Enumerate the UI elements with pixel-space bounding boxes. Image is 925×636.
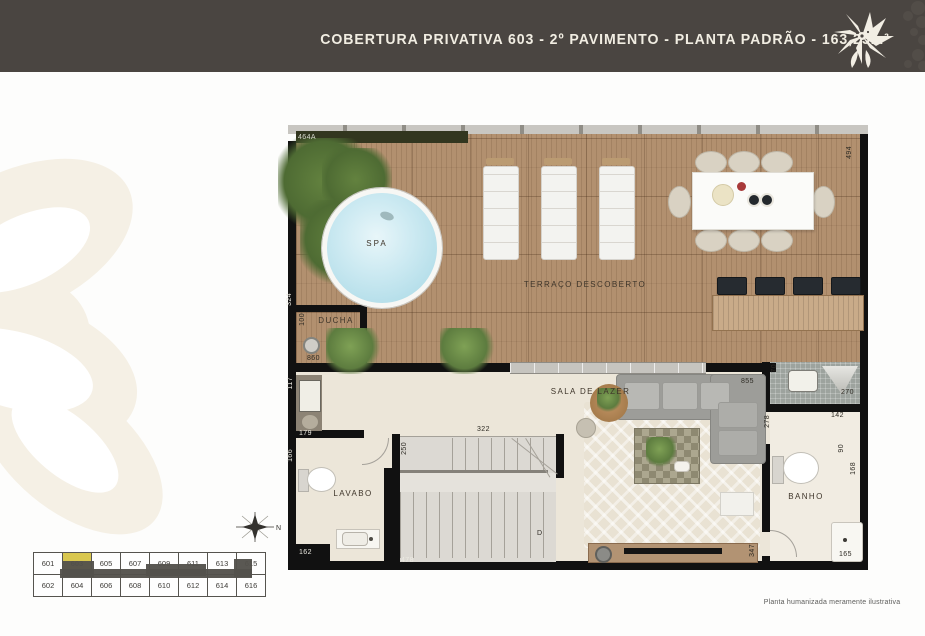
flower-logo-icon <box>826 6 898 70</box>
keyplan-unit: 602 <box>34 575 63 597</box>
dining-chair <box>728 229 760 252</box>
bar-stool <box>755 277 785 295</box>
lounger-headrest <box>544 158 572 165</box>
keyplan-unit: 608 <box>121 575 150 597</box>
room-label-terraco: TERRAÇO DESCOBERTO <box>500 280 670 289</box>
sun-lounger <box>599 166 635 260</box>
dim-banho-left: 278 <box>764 415 771 428</box>
banho-toilet-bowl <box>783 452 819 484</box>
sofa-cushion <box>718 430 758 456</box>
keyplan-unit: 606 <box>92 575 121 597</box>
bar-stool <box>831 277 861 295</box>
keyplan-unit: 612 <box>179 575 208 597</box>
tv-icon <box>624 548 722 554</box>
wall-banho-top <box>770 404 868 412</box>
compass-north-label: N <box>276 525 281 532</box>
dim-stairs-letter: D <box>537 530 542 537</box>
dining-chair <box>761 151 793 174</box>
bush-plant-icon <box>440 328 494 374</box>
faucet-icon <box>369 537 373 541</box>
dim-stairs-width: 322 <box>477 426 490 433</box>
bar-stool <box>793 277 823 295</box>
compass-icon: N <box>234 510 282 544</box>
dim-sala-width: 855 <box>741 378 754 385</box>
sliding-door <box>510 362 706 374</box>
coffee-table-plant-icon <box>646 437 676 467</box>
wall-stairs-right <box>556 434 564 478</box>
stairs-landing <box>400 473 556 492</box>
dining-chair <box>695 229 727 252</box>
dim-top-left: 464A <box>298 134 316 141</box>
ottoman <box>720 492 754 516</box>
room-label-banho: BANHO <box>775 492 837 501</box>
bar-stool <box>717 277 747 295</box>
wall-right <box>860 134 868 568</box>
dim-banho-mid: 90 <box>838 444 845 453</box>
lounger-headrest <box>602 158 630 165</box>
banho-faucet-icon <box>843 538 847 542</box>
dim-entry-width: 179 <box>299 430 312 437</box>
entry-sink <box>299 380 321 412</box>
dim-banho-door: 347 <box>749 544 756 557</box>
wall-ducha-top <box>296 305 366 312</box>
room-label-sala: SALA DE LAZER <box>508 387 673 396</box>
wall-sala-banho-lower <box>762 556 770 568</box>
tableware-icon <box>760 193 774 207</box>
dim-left-upper: 324 <box>286 293 293 306</box>
wall-stairs-left <box>392 434 400 561</box>
fruit-plate-icon <box>712 184 734 206</box>
tray-icon <box>674 461 690 472</box>
room-label-ducha: DUCHA <box>308 316 364 325</box>
shower-head-icon <box>303 337 320 354</box>
page: COBERTURA PRIVATIVA 603 - 2º PAVIMENTO -… <box>0 0 925 636</box>
dim-right-top: 494 <box>846 146 853 159</box>
disclaimer-text: Planta humanizada meramente ilustrativa <box>742 599 922 606</box>
pouf <box>576 418 596 438</box>
sofa-cushion <box>718 402 758 428</box>
keyplan-unit: 610 <box>150 575 179 597</box>
lavabo-sink <box>342 532 368 546</box>
nook-basin <box>788 370 818 392</box>
spa-pool <box>322 188 442 308</box>
stairs-lower-flight <box>400 492 550 558</box>
dining-chair <box>812 186 835 218</box>
dim-lavabo-width: 162 <box>299 549 312 556</box>
dim-ducha-height: 100 <box>299 313 306 326</box>
entry-bowl <box>301 414 319 430</box>
keyplan-unit: 614 <box>208 575 237 597</box>
wall-lavabo-right <box>384 468 392 561</box>
room-label-spa: SPA <box>347 239 407 248</box>
sun-lounger <box>483 166 519 260</box>
keyplan-unit: 616 <box>237 575 266 597</box>
dim-lavabo-height: 166 <box>287 449 294 462</box>
dim-banho-top: 142 <box>831 412 844 419</box>
dim-entry-wall: 117 <box>287 377 294 389</box>
dim-nook-height: 70 <box>771 364 778 373</box>
bar-counter <box>712 295 864 331</box>
dining-chair <box>728 151 760 174</box>
keyplan-building-silhouette <box>234 559 252 577</box>
bush-plant-icon <box>326 328 380 374</box>
header-bar: COBERTURA PRIVATIVA 603 - 2º PAVIMENTO -… <box>0 0 925 72</box>
sun-lounger <box>541 166 577 260</box>
dining-chair <box>761 229 793 252</box>
watermark-flower-icon <box>0 120 240 540</box>
dim-stairs-bottom: 478 <box>401 557 414 564</box>
dim-banho-bottom: 165 <box>839 551 852 558</box>
page-title: COBERTURA PRIVATIVA 603 - 2º PAVIMENTO -… <box>318 31 891 48</box>
speaker-icon <box>595 546 612 563</box>
keyplan-building-silhouette <box>146 564 206 576</box>
dim-stairs-height: 250 <box>401 442 408 455</box>
wall-bottom <box>288 561 868 570</box>
dining-chair <box>668 186 691 218</box>
dim-ducha-width: 860 <box>307 355 320 362</box>
tableware-icon <box>747 193 761 207</box>
dim-nook-width: 270 <box>841 389 854 396</box>
lounger-headrest <box>486 158 514 165</box>
keyplan-unit: 601 <box>34 553 63 575</box>
keyplan-building-silhouette <box>62 561 94 577</box>
fruit-icon <box>737 182 746 191</box>
keyplan-unit: 604 <box>63 575 92 597</box>
dim-banho-right: 168 <box>850 462 857 475</box>
dining-chair <box>695 151 727 174</box>
room-label-lavabo: LAVABO <box>318 489 388 498</box>
